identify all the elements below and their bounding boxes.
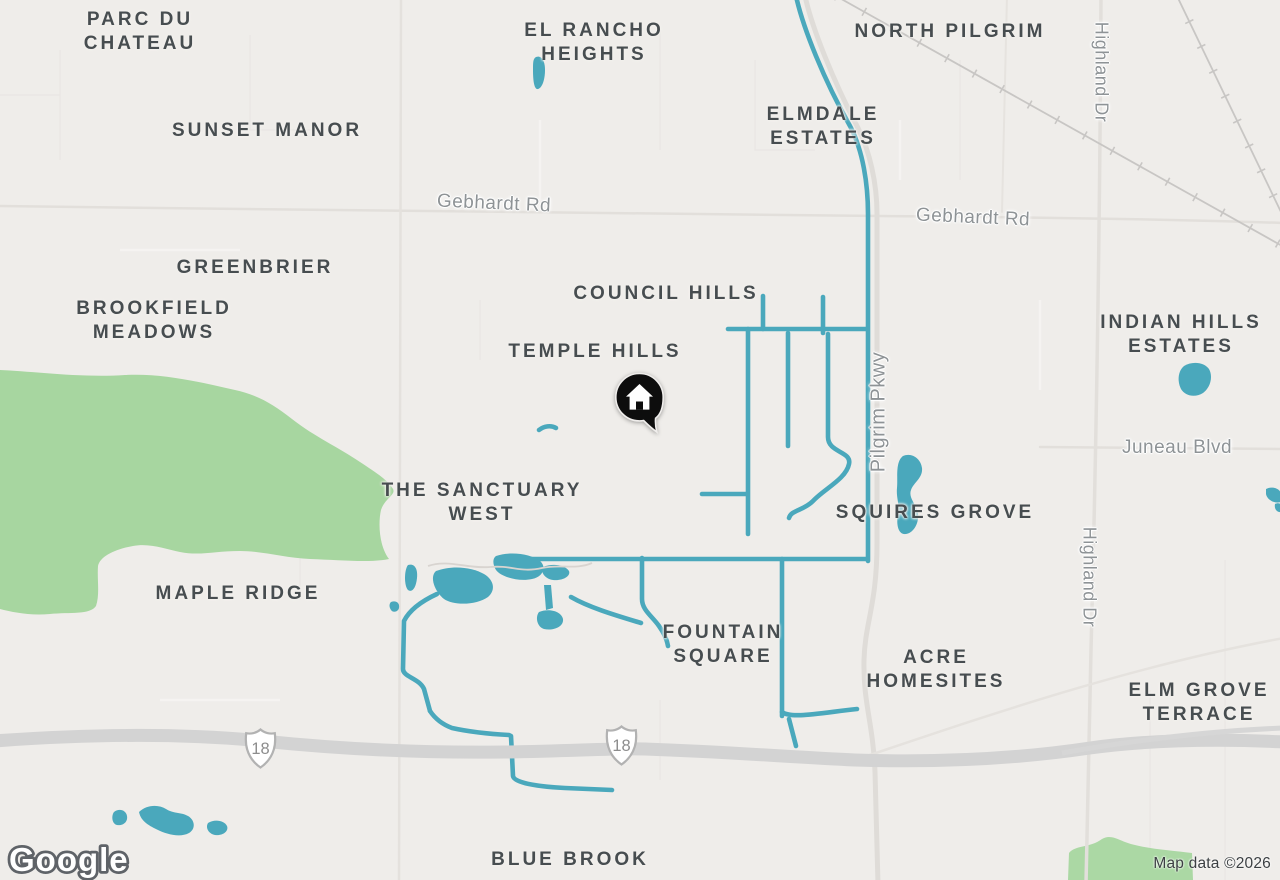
map-viewport[interactable]: 18 18 Google PARC DU CHATEAU EL RANCHO H… [0,0,1280,880]
house-door [636,402,643,410]
map-attribution: Map data ©2026 [1153,855,1271,873]
shield-route-number: 18 [251,740,269,758]
shield-route-number: 18 [612,737,630,755]
google-logo[interactable]: Google [9,841,129,878]
pond-blue-brook-1 [112,810,127,825]
map-canvas[interactable]: 18 18 Google [0,0,1280,880]
